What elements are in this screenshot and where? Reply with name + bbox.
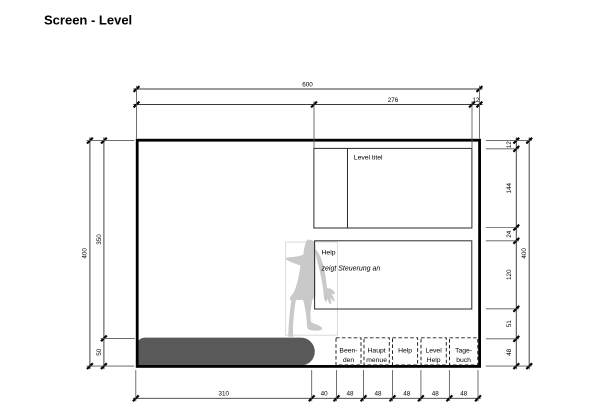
svg-text:48: 48	[374, 390, 382, 397]
svg-text:600: 600	[302, 81, 313, 88]
svg-text:Help: Help	[322, 249, 336, 256]
svg-text:400: 400	[82, 248, 89, 259]
svg-text:51: 51	[506, 320, 513, 328]
svg-text:310: 310	[219, 390, 230, 397]
svg-text:48: 48	[460, 390, 468, 397]
svg-text:12: 12	[472, 97, 480, 104]
svg-text:Haupt: Haupt	[368, 347, 386, 354]
svg-text:Been-: Been-	[339, 347, 357, 354]
svg-text:buch: buch	[456, 357, 471, 364]
svg-text:Screen - Level: Screen - Level	[44, 13, 132, 28]
svg-text:24: 24	[506, 230, 513, 238]
svg-text:Level: Level	[425, 347, 442, 354]
svg-text:40: 40	[321, 390, 329, 397]
svg-text:48: 48	[432, 390, 440, 397]
svg-text:Help: Help	[427, 357, 441, 364]
svg-text:120: 120	[506, 269, 513, 280]
svg-text:Help: Help	[398, 347, 412, 354]
svg-text:12: 12	[506, 141, 513, 149]
svg-text:den: den	[343, 357, 355, 364]
svg-text:50: 50	[96, 348, 103, 356]
svg-text:400: 400	[521, 248, 528, 259]
svg-text:48: 48	[506, 348, 513, 356]
svg-text:Level titel: Level titel	[354, 155, 383, 162]
svg-text:zeigt Steuerung an: zeigt Steuerung an	[321, 265, 381, 272]
svg-text:48: 48	[403, 390, 411, 397]
svg-text:276: 276	[388, 97, 399, 104]
svg-text:menue: menue	[366, 357, 387, 364]
svg-text:144: 144	[506, 182, 513, 193]
svg-text:Tage-: Tage-	[455, 347, 472, 354]
svg-text:350: 350	[96, 234, 103, 245]
svg-text:48: 48	[346, 390, 354, 397]
